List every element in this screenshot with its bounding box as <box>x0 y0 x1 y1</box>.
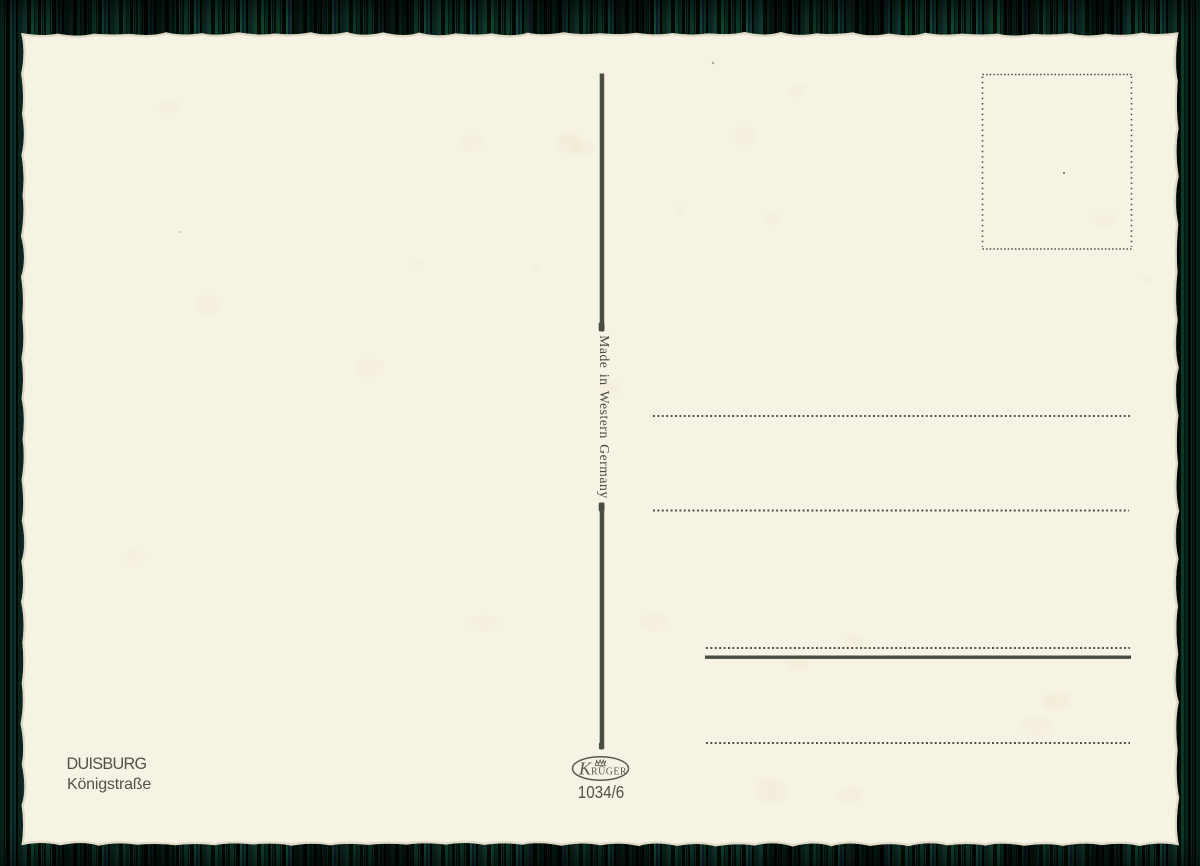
svg-text:1034/6: 1034/6 <box>578 782 625 802</box>
